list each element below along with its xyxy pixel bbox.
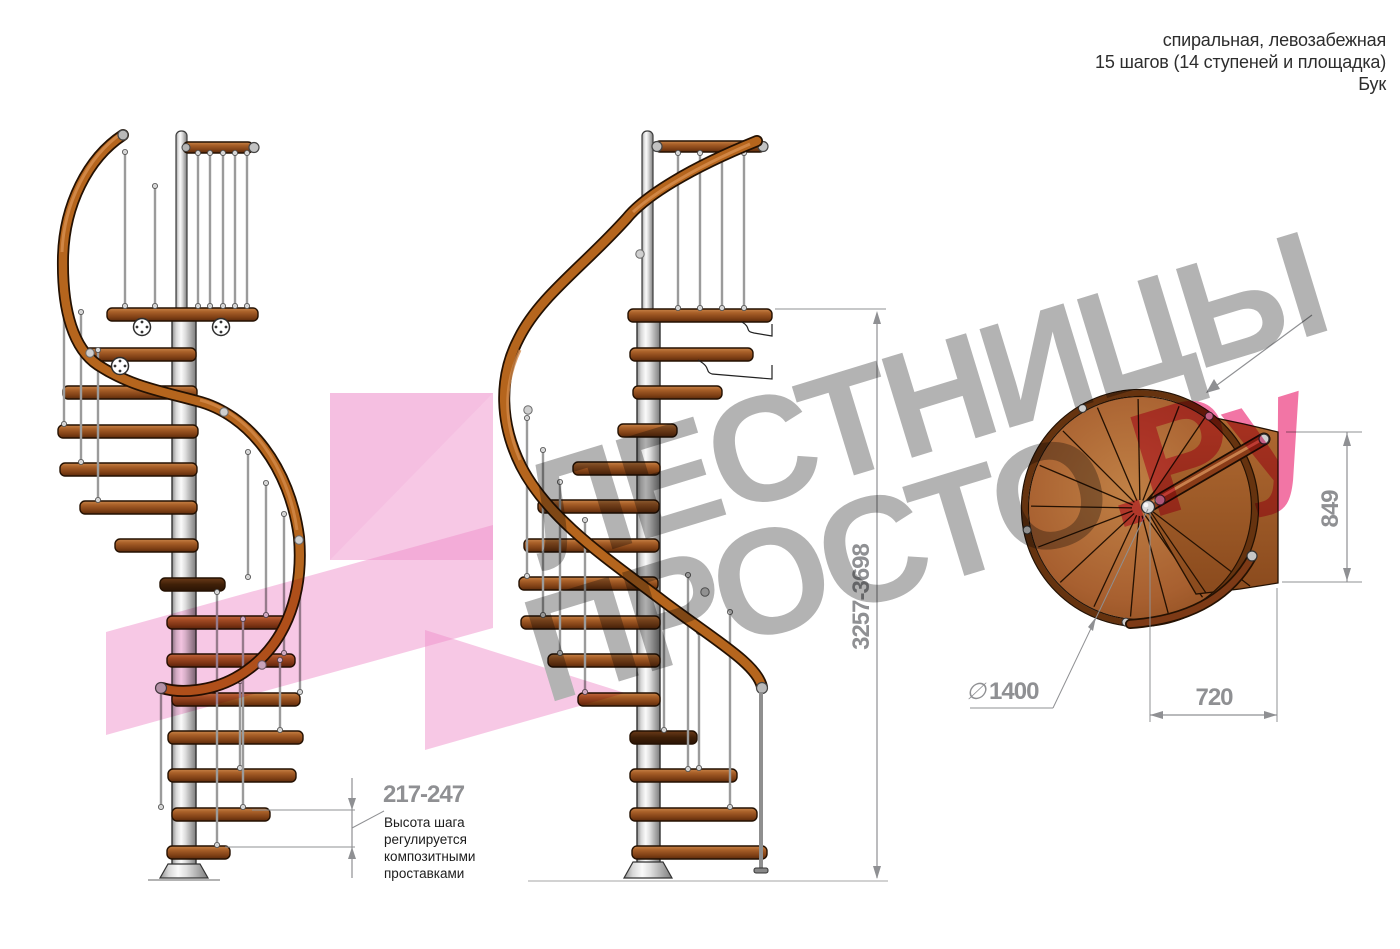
diameter-value: 1400 [989, 678, 1038, 705]
plate-connector-bolts [114, 321, 228, 373]
technical-drawing-page: спиральная, левозабежная 15 шагов (14 ст… [0, 0, 1400, 949]
rail-fitting [182, 144, 190, 152]
rail-end-cap [652, 142, 662, 152]
side-elevation-view [504, 131, 888, 881]
plate-connectors [112, 319, 230, 375]
step-width-dimension: 720 [1164, 684, 1264, 712]
stair-steps-label: 15 шагов (14 ступеней и площадка) [1095, 51, 1386, 73]
pole-base-flange [624, 862, 672, 878]
plan-center-hub [1142, 501, 1155, 514]
step-height-note: Высота шага регулируется композитными пр… [384, 814, 475, 882]
diameter-symbol: ∅ [966, 678, 985, 704]
center-pole-top [642, 131, 653, 313]
stair-material-label: Бук [1095, 73, 1386, 95]
rail-end-cap [249, 143, 259, 153]
pole-base-flange [160, 864, 208, 878]
platform-depth-dimension: 849 [1317, 459, 1345, 559]
step-height-dimension: 217-247 [383, 781, 464, 809]
top-guard-rail [183, 142, 253, 153]
total-height-dimension: 3257-3698 [848, 517, 876, 677]
drawing-title-block: спиральная, левозабежная 15 шагов (14 ст… [1095, 29, 1386, 95]
center-pole-top [176, 131, 187, 313]
stair-type-label: спиральная, левозабежная [1095, 29, 1386, 51]
diameter-dimension: ∅1400 [966, 678, 1038, 706]
front-elevation-view [58, 130, 303, 880]
balusters-side [524, 150, 746, 809]
staircase-drawing [0, 0, 1400, 949]
